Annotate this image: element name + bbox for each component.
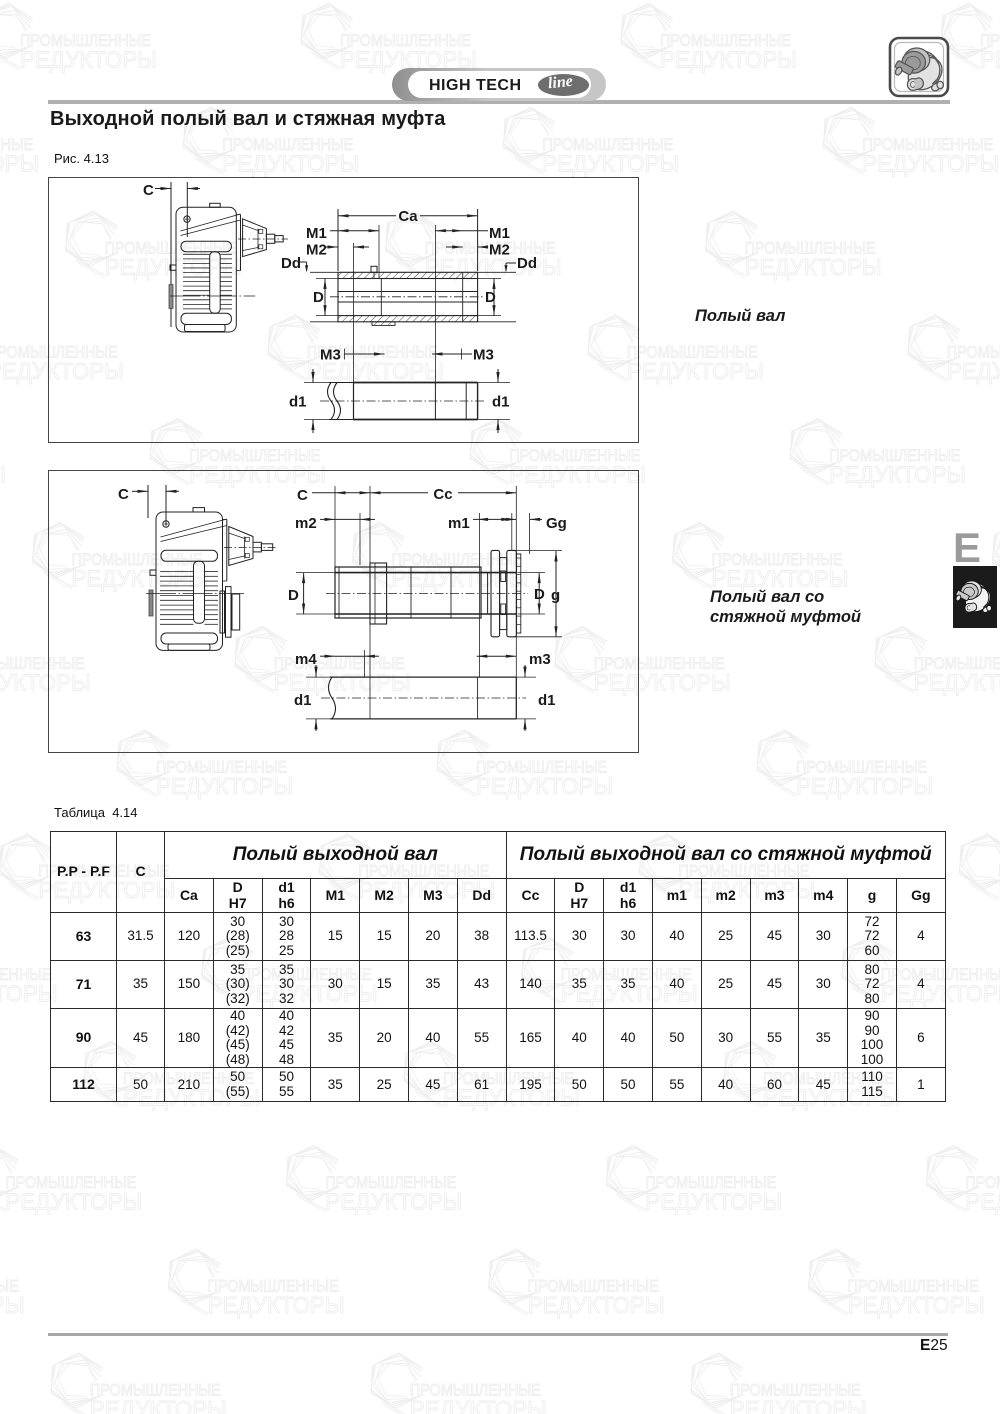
svg-text:d1: d1 [289,394,307,411]
svg-text:M1: M1 [489,225,510,242]
svg-text:Gg: Gg [546,515,567,532]
svg-text:M2: M2 [489,242,510,259]
svg-text:Ca: Ca [398,208,418,225]
svg-text:D: D [313,289,324,306]
svg-text:d1: d1 [492,394,510,411]
svg-text:M1: M1 [306,225,327,242]
svg-text:d1: d1 [294,692,312,709]
svg-text:C: C [297,487,308,504]
svg-text:m1: m1 [448,515,470,532]
svg-text:m2: m2 [295,515,317,532]
svg-text:Cc: Cc [433,486,452,503]
svg-text:M3: M3 [473,347,494,364]
svg-text:d1: d1 [538,692,556,709]
svg-text:Dd: Dd [281,255,301,272]
svg-text:M3: M3 [320,347,341,364]
svg-text:m3: m3 [529,651,551,668]
svg-text:D: D [288,587,299,604]
svg-text:C: C [118,486,129,503]
svg-text:M2: M2 [306,242,327,259]
svg-text:C: C [143,182,154,199]
svg-text:Dd: Dd [517,255,537,272]
svg-text:m4: m4 [295,651,317,668]
